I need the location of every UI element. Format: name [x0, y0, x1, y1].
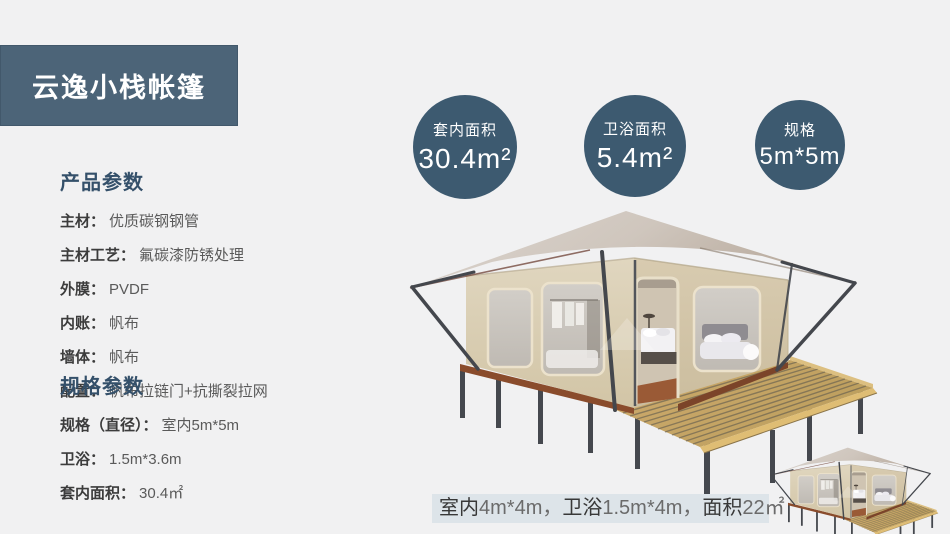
- caption-value: 22㎡: [742, 497, 784, 519]
- window-small: [488, 289, 532, 367]
- caption-bar: 室内4m*4m，卫浴1.5m*4m，面积22㎡: [432, 494, 769, 523]
- caption-value: 1.5m*4m，: [602, 497, 702, 519]
- main-tent-render: [0, 0, 950, 534]
- window-bedroom: [694, 287, 760, 371]
- caption-value: 4m*4m，: [479, 497, 562, 519]
- window-wardrobe: [542, 283, 604, 375]
- small-tent-render: [770, 448, 938, 534]
- caption-label: 卫浴: [562, 497, 602, 519]
- door-opening: [635, 260, 678, 406]
- caption-label: 室内: [439, 497, 479, 519]
- tent-illustration: [410, 211, 877, 505]
- caption-label: 面积: [702, 497, 742, 519]
